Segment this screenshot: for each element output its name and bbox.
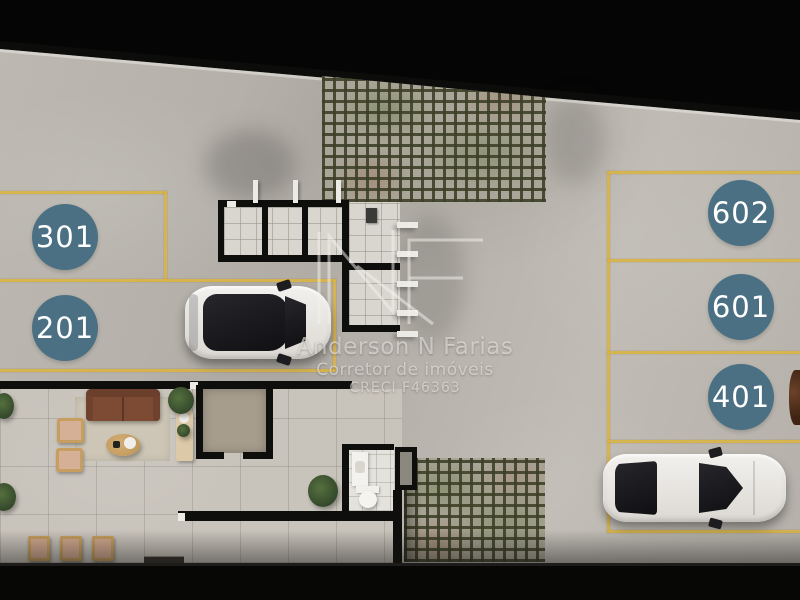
stall-wall bbox=[218, 200, 224, 262]
stall-door bbox=[336, 180, 341, 203]
badge-label: 601 bbox=[712, 290, 770, 324]
parking-badge-601: 601 bbox=[708, 274, 774, 340]
car-sedan bbox=[601, 449, 788, 527]
potted-plant bbox=[177, 424, 190, 437]
wall-cap bbox=[178, 513, 185, 521]
car-trunk-line bbox=[753, 461, 755, 515]
armchair bbox=[57, 418, 84, 443]
parking-line bbox=[607, 171, 800, 174]
watermark-license: CRECI F46363 bbox=[279, 380, 531, 396]
lower-wall bbox=[178, 511, 402, 521]
logo-stroke bbox=[329, 230, 393, 324]
car-glass-roof bbox=[203, 294, 289, 351]
floor-shadow bbox=[545, 95, 605, 185]
car-rear-window bbox=[615, 461, 657, 515]
parking-line bbox=[607, 259, 800, 262]
sofa-cushion-seam bbox=[122, 397, 124, 421]
wall-cap bbox=[227, 201, 236, 207]
bathroom-wall bbox=[342, 444, 394, 450]
bush-plant bbox=[308, 475, 338, 507]
potted-plant bbox=[168, 387, 194, 414]
logo-stroke bbox=[409, 240, 483, 324]
armchair bbox=[56, 448, 83, 472]
toilet-bowl bbox=[359, 491, 377, 508]
logo-stroke bbox=[357, 266, 433, 324]
elevator-wall bbox=[266, 385, 273, 459]
dry-plant bbox=[789, 370, 800, 425]
table-decor bbox=[113, 441, 120, 448]
parking-line bbox=[0, 191, 167, 194]
car-rear-detail bbox=[189, 294, 198, 351]
stall-wall bbox=[262, 200, 268, 262]
bottom-perimeter-wall bbox=[0, 563, 800, 600]
watermark-name: Anderson N Farias bbox=[279, 334, 531, 360]
parking-line bbox=[164, 191, 167, 281]
elevator-wall bbox=[243, 452, 273, 459]
watermark-role: Corretor de imóveis bbox=[279, 360, 531, 380]
sink-basin bbox=[355, 461, 365, 473]
badge-label: 401 bbox=[712, 380, 770, 414]
parking-line bbox=[607, 351, 800, 354]
elevator-wall bbox=[196, 385, 203, 459]
elevator-room-carpet bbox=[203, 389, 266, 453]
parking-badge-401: 401 bbox=[708, 364, 774, 430]
bottom-floor-shadow bbox=[0, 530, 800, 566]
stall-door bbox=[253, 180, 258, 203]
parking-badge-201: 201 bbox=[32, 295, 98, 361]
duct-niche bbox=[395, 447, 417, 490]
parking-line bbox=[607, 440, 800, 443]
sofa-arm bbox=[86, 395, 93, 421]
landscape-grate-top bbox=[322, 76, 546, 202]
stall-door bbox=[293, 180, 298, 203]
badge-label: 301 bbox=[36, 220, 94, 254]
parking-badge-602: 602 bbox=[708, 180, 774, 246]
floor-plan-canvas: 301 201 602 601 401 bbox=[0, 0, 800, 600]
floor-shadow bbox=[205, 130, 295, 200]
table-dish bbox=[179, 413, 189, 423]
bathroom-wall bbox=[342, 444, 349, 516]
badge-label: 201 bbox=[36, 311, 94, 345]
stall-wall bbox=[218, 200, 348, 207]
badge-label: 602 bbox=[712, 196, 770, 230]
table-tray bbox=[124, 437, 136, 449]
watermark-logo bbox=[305, 212, 490, 330]
sofa-back bbox=[86, 389, 160, 397]
elevator-wall bbox=[196, 452, 224, 459]
sofa-arm bbox=[153, 395, 160, 421]
parking-badge-301: 301 bbox=[32, 204, 98, 270]
